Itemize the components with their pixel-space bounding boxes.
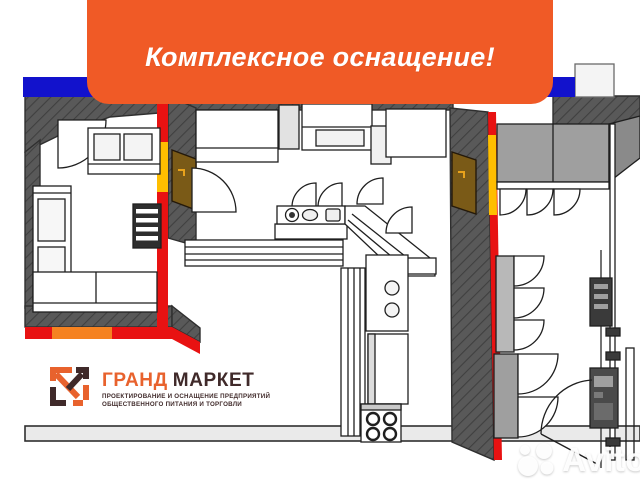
logo-title: ГРАНДМАРКЕТ (102, 371, 270, 390)
logo-tagline-line1: ПРОЕКТИРОВАНИЕ И ОСНАЩЕНИЕ ПРЕДПРИЯТИЙ (102, 393, 270, 401)
top-counter-row (196, 104, 446, 164)
avito-logo-icon (517, 442, 555, 476)
door-swing-fan (527, 189, 553, 215)
cooktop-island (275, 206, 347, 239)
door-swing-fan (292, 183, 316, 207)
orange-wall-segment-bottom (52, 327, 112, 339)
two-burner-unit (366, 255, 408, 331)
logo-mark-icon (48, 365, 91, 408)
equipment-dark (590, 368, 618, 428)
sink-counter (88, 128, 160, 174)
shelving-unit-upper (496, 256, 544, 352)
avito-watermark-text: Avito (562, 443, 640, 476)
door-swing-fan (318, 183, 342, 207)
promo-banner: Комплексное оснащение! (87, 0, 553, 104)
floor-strip (25, 426, 640, 441)
door-swing-fan (554, 189, 580, 215)
door-swing-fan (386, 207, 412, 233)
left-room (33, 120, 161, 312)
work-counter (185, 240, 343, 266)
wall-rack-dark (590, 278, 612, 326)
logo-text-block: ГРАНДМАРКЕТ ПРОЕКТИРОВАНИЕ И ОСНАЩЕНИЕ П… (102, 365, 270, 410)
logo-title-secondary: МАРКЕТ (173, 370, 255, 391)
door-swing-arc (192, 168, 236, 212)
logo-tagline-line2: ОБЩЕСТВЕННОГО ПИТАНИЯ И ТОРГОВЛИ (102, 401, 270, 409)
avito-watermark: Avito (517, 442, 640, 476)
prep-cabinet (368, 334, 408, 404)
yellow-wall-segment-right (488, 135, 497, 215)
company-logo: ГРАНДМАРКЕТ ПРОЕКТИРОВАНИЕ И ОСНАЩЕНИЕ П… (48, 365, 270, 410)
door-swing-fan (500, 189, 526, 215)
door-leaf-right (452, 152, 476, 214)
bottom-counters (33, 272, 157, 312)
shelving-rack-dark (133, 204, 161, 248)
right-room (494, 64, 640, 468)
logo-title-primary: ГРАНД (102, 370, 168, 391)
door-swing-fan (357, 178, 383, 204)
stove-four-burners (361, 404, 401, 442)
logo-tagline: ПРОЕКТИРОВАНИЕ И ОСНАЩЕНИЕ ПРЕДПРИЯТИЙ О… (102, 393, 270, 410)
promo-banner-text: Комплексное оснащение! (145, 42, 495, 73)
rooftop-box (575, 64, 614, 97)
fridge-cabinets (497, 116, 640, 189)
ad-image: Комплексное оснащение! ГРАНДМАРКЕТ ПРОЕК… (0, 0, 640, 479)
